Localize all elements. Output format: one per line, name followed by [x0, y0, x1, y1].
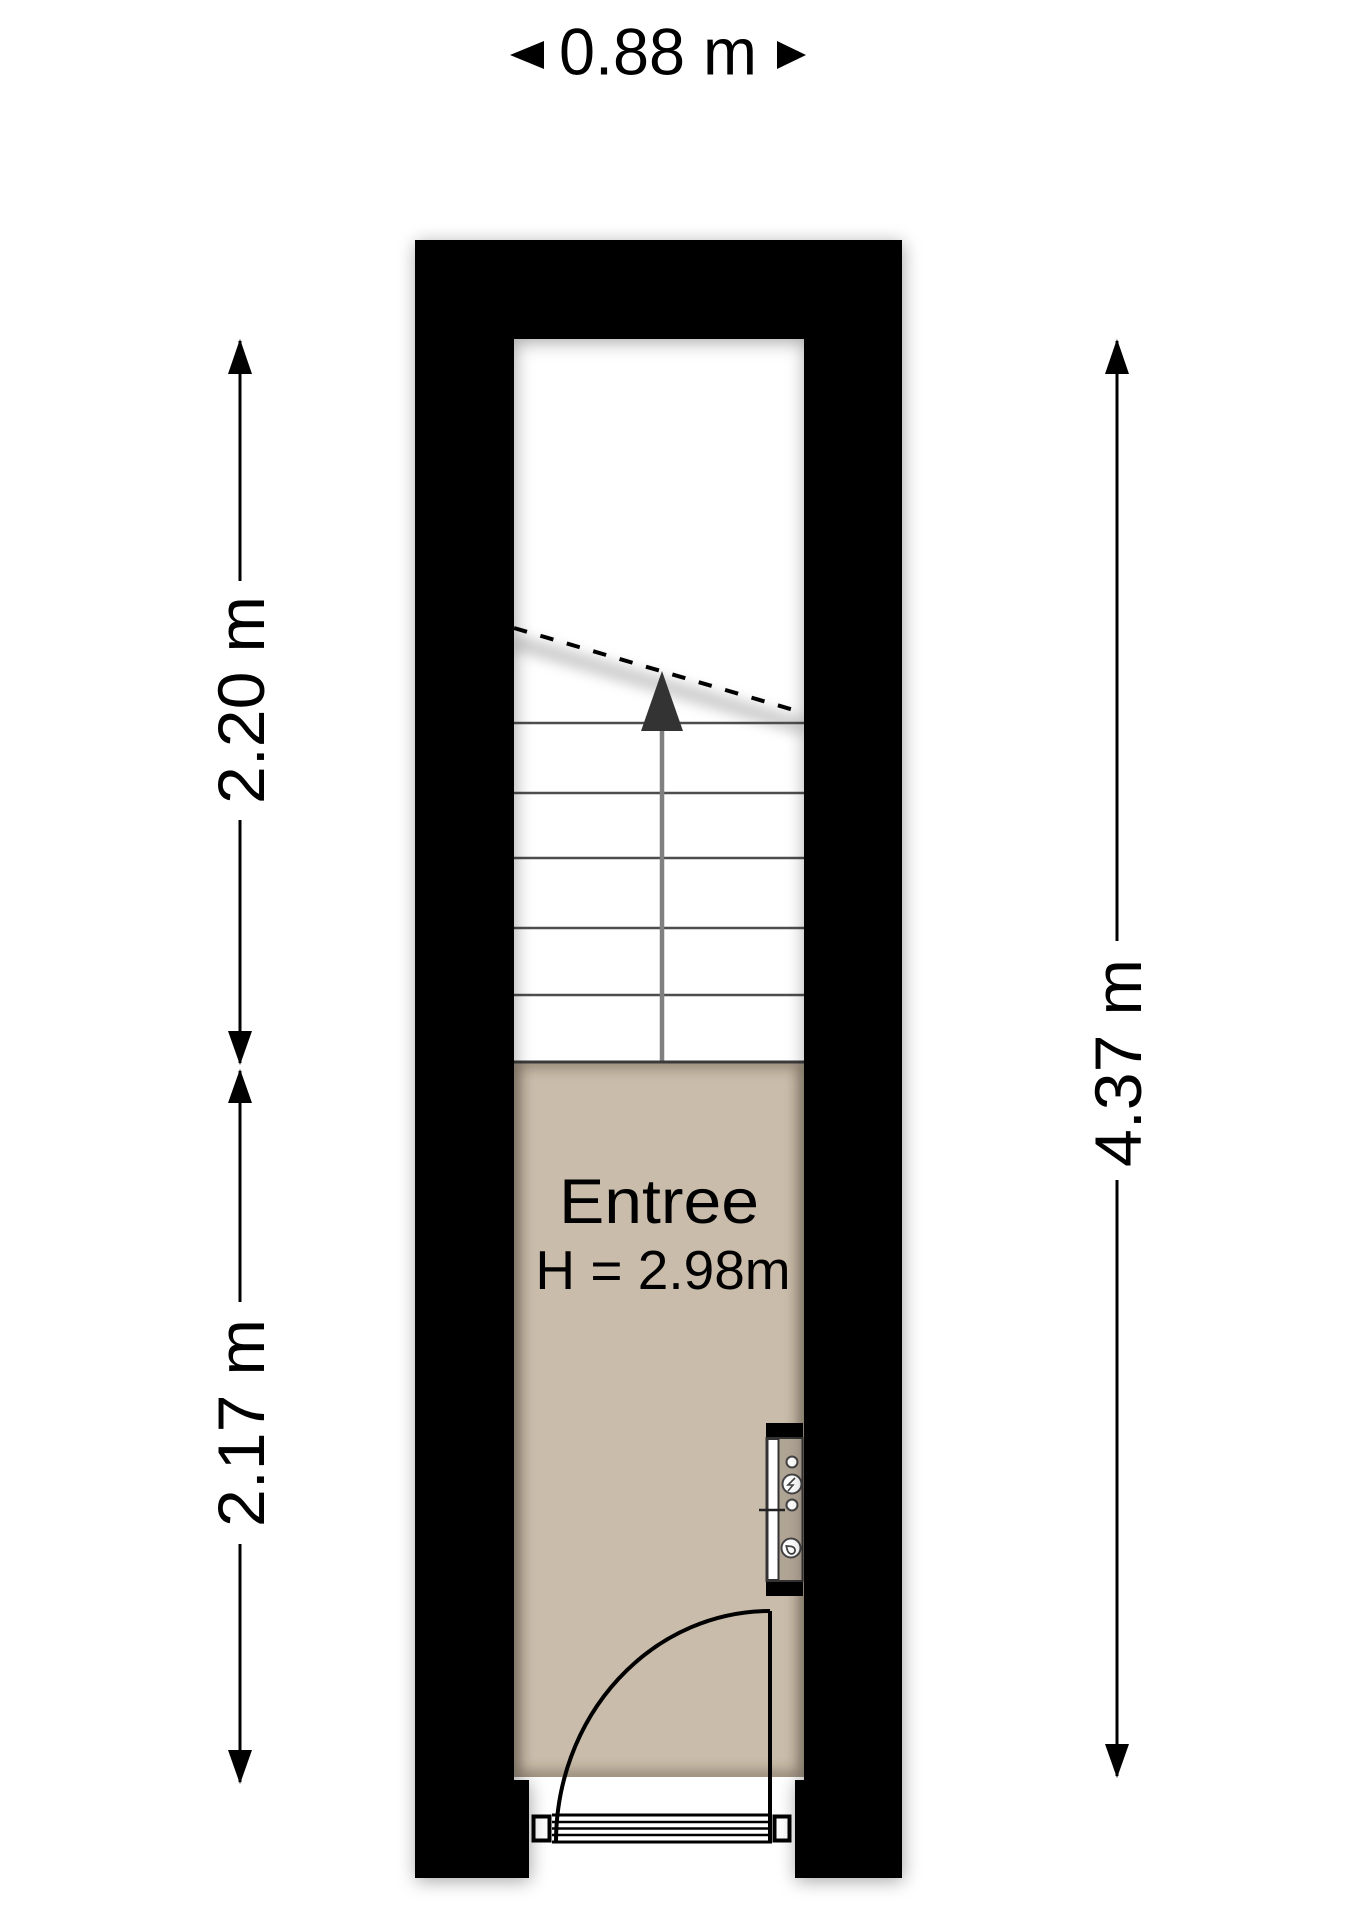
svg-text:2.20 m: 2.20 m — [204, 596, 278, 804]
svg-text:2.17 m: 2.17 m — [204, 1319, 278, 1527]
svg-text:Entree: Entree — [559, 1167, 759, 1237]
svg-text:H = 2.98m: H = 2.98m — [535, 1239, 790, 1301]
svg-text:0.88 m: 0.88 m — [559, 15, 757, 89]
svg-text:4.37 m: 4.37 m — [1081, 959, 1155, 1167]
